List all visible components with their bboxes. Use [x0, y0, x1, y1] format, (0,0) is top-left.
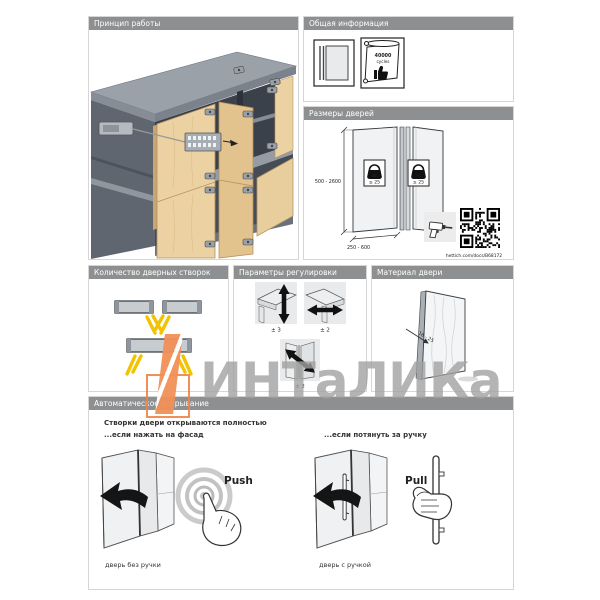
hinge-arm-icon [147, 316, 169, 333]
panel-auto-opening: Автоматическое открывание Створки двери … [88, 396, 514, 590]
push-instruction: ...если нажать на фасад [104, 431, 204, 439]
door-material-diagram: 16 - 25 [372, 279, 513, 391]
panel-auto-opening-title: Автоматическое открывание [89, 397, 513, 410]
weight-limit-label: ≤ 25 [413, 180, 424, 186]
panel-adjustment-body: ± 3 ± 2 [234, 279, 366, 391]
general-info-icons: 40000 cycles [304, 30, 513, 101]
panel-door-sizes-title: Размеры дверей [304, 107, 513, 120]
panel-adjustment-title: Параметры регулировки [234, 266, 366, 279]
depth-adjust [280, 339, 320, 381]
panel-principle-body [89, 30, 298, 259]
catalog-page: Принцип работы [0, 0, 600, 600]
push-diagram: Push [94, 444, 294, 576]
panel-general-info-body: 40000 cycles [304, 30, 513, 101]
height-dimension [341, 127, 353, 235]
door-count-diagram [89, 279, 228, 391]
cabinet-illustration [89, 30, 298, 259]
door-shadow [458, 377, 478, 382]
certificate-icon: 40000 cycles [361, 38, 404, 88]
push-label: Push [224, 475, 253, 487]
panel-door-sizes: Размеры дверей [303, 106, 514, 260]
vertical-adjust-value: ± 3 [271, 328, 281, 334]
panel-principle: Принцип работы [88, 16, 299, 260]
height-range-label: 500 - 2600 [315, 179, 341, 185]
door-sizes-diagram: kg ≤ 25 kg ≤ 25 [304, 120, 513, 259]
panel-door-material: Материал двери 16 - 25 [371, 265, 514, 392]
panel-general-info: Общая информация 40000 cycles [303, 16, 514, 102]
qr-code [459, 207, 501, 249]
panel-door-material-body: 16 - 25 [372, 279, 513, 391]
single-leaf-door [127, 339, 191, 374]
panel-principle-title: Принцип работы [89, 17, 298, 30]
panel-door-count: Количество дверных створок [88, 265, 229, 392]
vertical-adjust [255, 282, 297, 324]
panel-door-material-title: Материал двери [372, 266, 513, 279]
adjustment-diagram: ± 3 ± 2 [234, 279, 366, 391]
two-leaf-doors [115, 301, 201, 333]
doc-link: hettich.com/docs/B68172 [446, 253, 502, 259]
horizontal-adjust [304, 282, 346, 324]
pull-diagram: Pull [307, 444, 507, 576]
hinge-arm-icon [127, 356, 191, 374]
pull-instruction: ...если потянуть за ручку [324, 431, 427, 439]
weight-limit-label: ≤ 25 [369, 180, 380, 186]
width-range-label: 250 - 600 [347, 245, 370, 251]
weight-badge: kg ≤ 25 [364, 160, 385, 186]
depth-adjust-value: ± 2 [295, 384, 305, 390]
handle-caption: дверь с ручкой [319, 561, 371, 569]
panel-auto-opening-body: Створки двери открываются полностью ...е… [89, 410, 513, 589]
no-handle-caption: дверь без ручки [105, 561, 161, 569]
pull-label: Pull [405, 475, 427, 487]
panel-door-count-title: Количество дверных створок [89, 266, 228, 279]
drill-icon [424, 212, 456, 242]
catalog-icon [314, 40, 354, 86]
panel-door-count-body [89, 279, 228, 391]
auto-opening-headline: Створки двери открываются полностью [104, 419, 267, 427]
horizontal-adjust-value: ± 2 [320, 328, 330, 334]
kg-label: kg [417, 174, 421, 178]
weight-badge: kg ≤ 25 [408, 160, 429, 186]
panel-general-info-title: Общая информация [304, 17, 513, 30]
panel-adjustment: Параметры регулировки ± 3 [233, 265, 367, 392]
cycles-word: cycles [376, 59, 389, 64]
gripping-hand-icon [413, 487, 451, 519]
kg-label: kg [373, 174, 377, 178]
panel-door-sizes-body: kg ≤ 25 kg ≤ 25 [304, 120, 513, 259]
